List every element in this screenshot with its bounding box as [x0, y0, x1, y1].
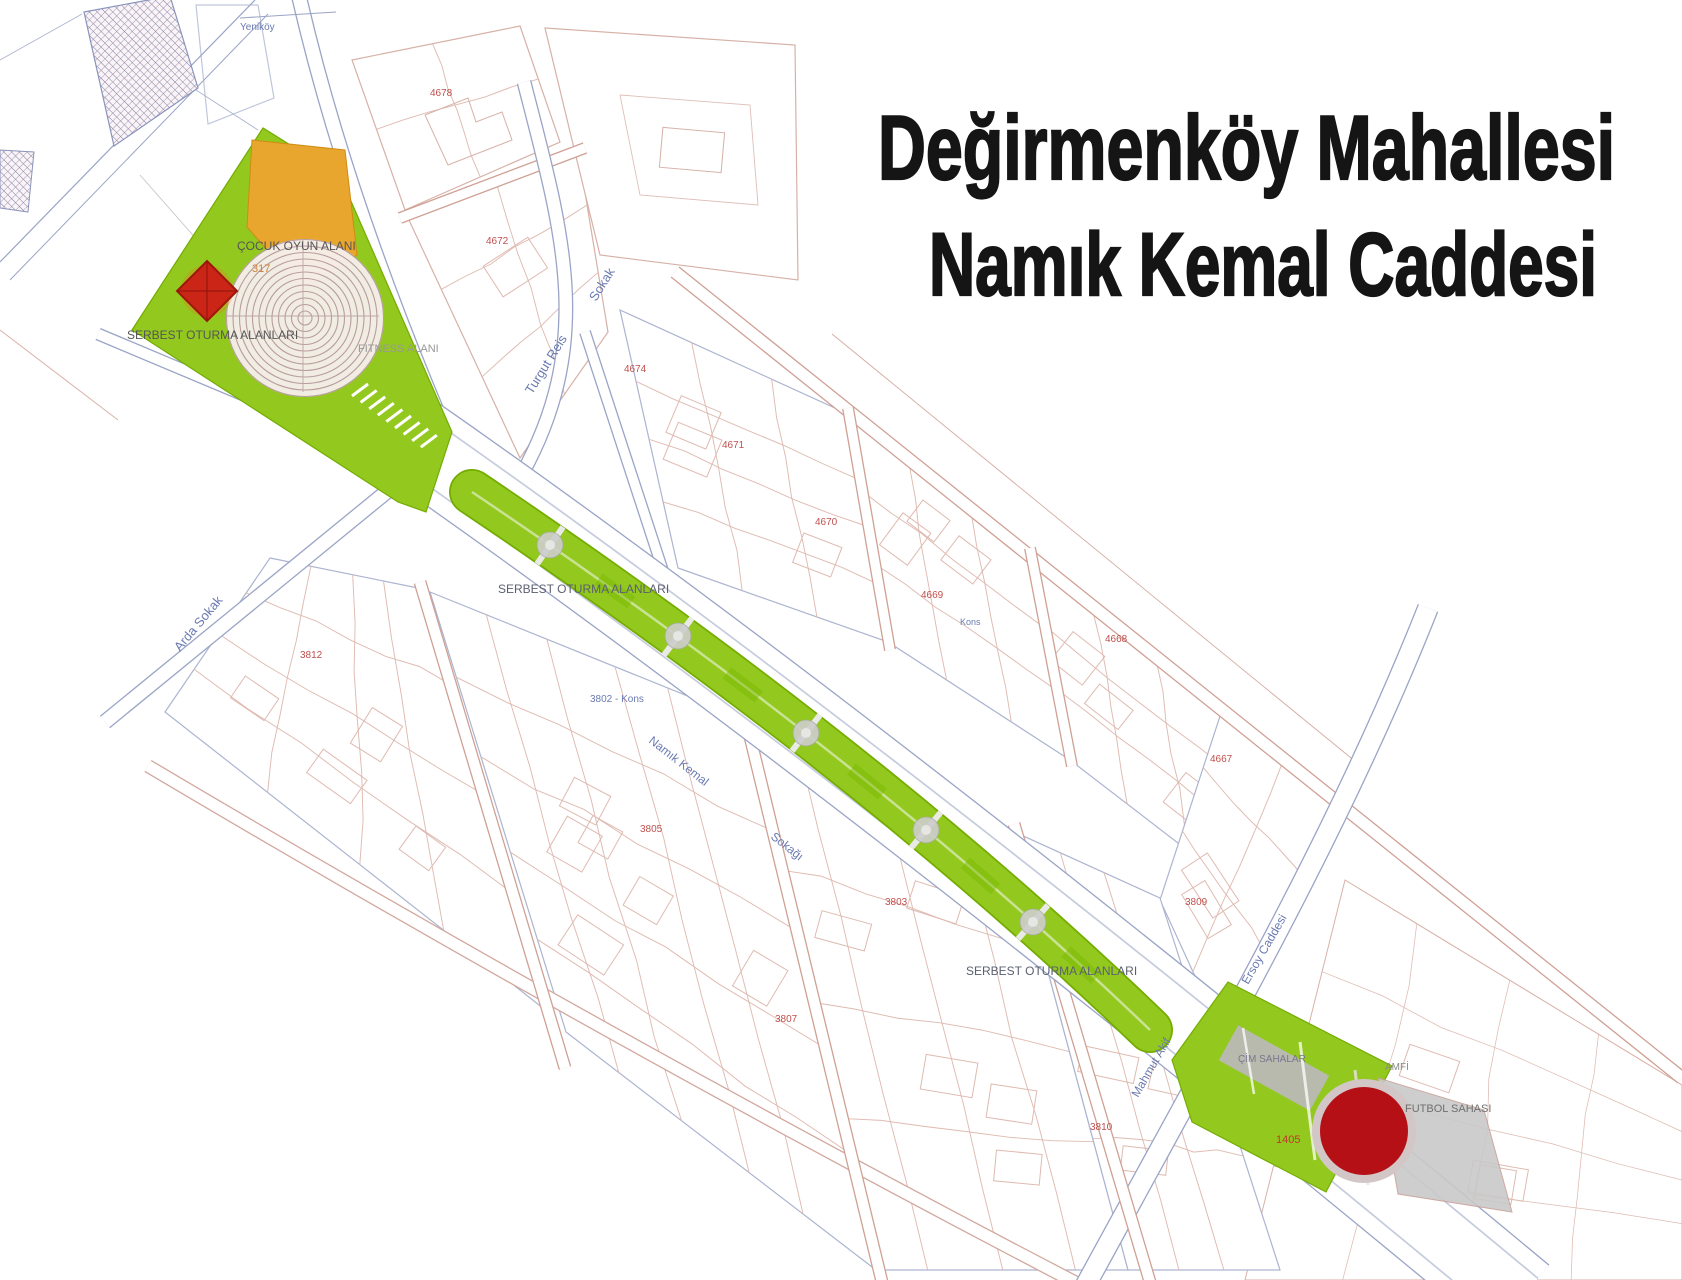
svg-text:AMFİ: AMFİ: [1385, 1060, 1409, 1073]
svg-text:3810: 3810: [1090, 1122, 1113, 1133]
svg-text:Kons: Kons: [960, 617, 981, 627]
svg-text:FUTBOL SAHASI: FUTBOL SAHASI: [1405, 1103, 1491, 1115]
svg-text:SERBEST OTURMA ALANLARI: SERBEST OTURMA ALANLARI: [127, 328, 298, 342]
svg-text:SERBEST OTURMA ALANLARI: SERBEST OTURMA ALANLARI: [498, 582, 669, 596]
svg-text:3809: 3809: [1185, 897, 1208, 908]
svg-text:317: 317: [252, 263, 270, 275]
svg-text:4678: 4678: [430, 88, 453, 99]
svg-text:ÇİM SAHALAR: ÇİM SAHALAR: [1238, 1052, 1306, 1065]
svg-text:FITNESS ALANI: FITNESS ALANI: [358, 343, 439, 355]
svg-text:4667: 4667: [1210, 754, 1233, 765]
svg-text:SERBEST OTURMA ALANLARI: SERBEST OTURMA ALANLARI: [966, 964, 1137, 978]
svg-text:4674: 4674: [624, 364, 647, 375]
svg-text:3805: 3805: [640, 824, 663, 835]
svg-text:ÇOCUK OYUN ALANI: ÇOCUK OYUN ALANI: [237, 239, 356, 253]
svg-text:Değirmenköy Mahallesi: Değirmenköy Mahallesi: [878, 98, 1615, 199]
svg-text:4671: 4671: [722, 440, 745, 451]
svg-text:Yeniköy: Yeniköy: [240, 22, 275, 33]
svg-text:4672: 4672: [486, 236, 509, 247]
svg-text:1405: 1405: [1276, 1134, 1300, 1146]
svg-text:4669: 4669: [921, 590, 944, 601]
svg-text:Namık Kemal Caddesi: Namık Kemal Caddesi: [929, 214, 1597, 314]
svg-text:3807: 3807: [775, 1014, 798, 1025]
svg-text:4670: 4670: [815, 517, 838, 528]
svg-text:4668: 4668: [1105, 634, 1128, 645]
svg-text:3802 - Kons: 3802 - Kons: [590, 694, 644, 705]
svg-text:3812: 3812: [300, 650, 323, 661]
svg-text:3803: 3803: [885, 897, 908, 908]
